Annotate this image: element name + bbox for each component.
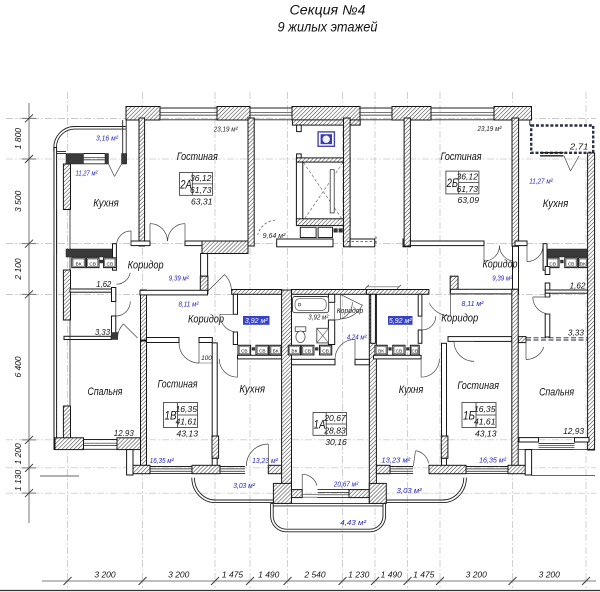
svg-text:11,27 м²: 11,27 м² <box>76 171 99 178</box>
svg-text:20,67: 20,67 <box>323 413 347 423</box>
svg-text:Спальня: Спальня <box>88 386 123 398</box>
svg-text:Спальня: Спальня <box>539 387 574 399</box>
svg-text:Коридор: Коридор <box>188 313 224 325</box>
svg-text:ВК: ВК <box>291 349 297 355</box>
svg-text:9,39 м²: 9,39 м² <box>492 275 513 282</box>
svg-text:2 100: 2 100 <box>13 258 23 281</box>
svg-text:1 200: 1 200 <box>13 443 23 465</box>
svg-text:Коридор: Коридор <box>483 259 518 271</box>
svg-text:4,43 м²: 4,43 м² <box>340 520 367 527</box>
svg-text:Гостиная: Гостиная <box>177 151 218 163</box>
svg-text:23,19 м²: 23,19 м² <box>213 127 239 134</box>
svg-text:3,92 м²: 3,92 м² <box>308 315 329 322</box>
svg-text:8,11 м²: 8,11 м² <box>462 301 485 308</box>
svg-text:9,39 м²: 9,39 м² <box>169 276 190 283</box>
svg-text:3 200: 3 200 <box>94 570 116 580</box>
svg-text:1 490: 1 490 <box>381 570 403 580</box>
svg-text:СВ: СВ <box>304 349 311 355</box>
svg-text:Коридор: Коридор <box>441 312 478 324</box>
svg-text:1 490: 1 490 <box>258 570 280 580</box>
svg-text:1 230: 1 230 <box>348 570 370 580</box>
svg-text:63,31: 63,31 <box>191 197 213 207</box>
svg-text:5,92 м²: 5,92 м² <box>389 318 412 325</box>
svg-text:4,24 м²: 4,24 м² <box>347 335 368 342</box>
svg-text:13,23 м²: 13,23 м² <box>252 458 278 465</box>
svg-text:63,09: 63,09 <box>457 195 479 205</box>
svg-text:Кухня: Кухня <box>543 198 569 210</box>
svg-text:3 500: 3 500 <box>13 190 23 212</box>
svg-text:41,61: 41,61 <box>474 417 496 427</box>
svg-text:3 200: 3 200 <box>466 570 488 580</box>
svg-text:43,13: 43,13 <box>475 429 497 439</box>
svg-text:3,33: 3,33 <box>568 327 584 337</box>
svg-text:СВ: СВ <box>396 349 403 355</box>
svg-text:Коридор: Коридор <box>128 260 164 272</box>
svg-text:28,83: 28,83 <box>323 425 346 435</box>
svg-text:3,92 м²: 3,92 м² <box>245 318 268 325</box>
svg-text:2 540: 2 540 <box>303 570 326 580</box>
svg-text:3,03 м²: 3,03 м² <box>233 483 255 490</box>
svg-text:23,19 м²: 23,19 м² <box>477 126 503 133</box>
svg-text:СВ: СВ <box>322 349 329 355</box>
svg-text:16,35: 16,35 <box>474 404 496 414</box>
svg-text:ВК: ВК <box>378 349 384 355</box>
svg-text:43,13: 43,13 <box>176 429 198 439</box>
svg-text:16,35 м²: 16,35 м² <box>479 457 507 464</box>
svg-text:41,61: 41,61 <box>175 417 197 427</box>
svg-text:30,16: 30,16 <box>325 437 347 447</box>
svg-text:36,12: 36,12 <box>456 172 478 182</box>
svg-text:Гостиная: Гостиная <box>441 151 482 163</box>
svg-text:1 130: 1 130 <box>13 470 23 492</box>
svg-text:СВ: СВ <box>89 261 96 267</box>
svg-text:ВК: ВК <box>580 261 586 267</box>
svg-text:СВ: СВ <box>259 349 266 355</box>
svg-text:СВ: СВ <box>241 349 248 355</box>
svg-text:Гостиная: Гостиная <box>158 379 198 391</box>
svg-text:1 475: 1 475 <box>222 570 244 580</box>
svg-text:100: 100 <box>201 355 212 362</box>
svg-text:БК: БК <box>273 349 279 355</box>
svg-text:3,03 м²: 3,03 м² <box>397 488 423 495</box>
svg-text:СВ: СВ <box>411 349 418 355</box>
svg-text:Кухня: Кухня <box>239 383 265 395</box>
svg-text:СВ: СВ <box>107 261 114 267</box>
svg-text:8,11 м²: 8,11 м² <box>179 301 200 308</box>
svg-text:9,64 м²: 9,64 м² <box>263 233 286 240</box>
svg-text:61,73: 61,73 <box>456 184 478 194</box>
svg-text:6 400: 6 400 <box>13 356 23 378</box>
svg-text:36,12: 36,12 <box>190 173 212 183</box>
svg-text:16,35: 16,35 <box>175 404 197 414</box>
svg-text:11,27 м²: 11,27 м² <box>529 179 553 186</box>
svg-text:1 475: 1 475 <box>413 570 435 580</box>
svg-text:61,73: 61,73 <box>190 185 212 195</box>
svg-text:Секция №4: Секция №4 <box>290 3 366 18</box>
svg-text:3,33: 3,33 <box>95 327 110 337</box>
svg-text:1 800: 1 800 <box>13 128 23 150</box>
svg-text:2,71: 2,71 <box>569 141 589 151</box>
svg-text:Кухня: Кухня <box>399 384 424 396</box>
svg-text:3,16 м²: 3,16 м² <box>96 136 119 143</box>
svg-text:1,62: 1,62 <box>570 281 586 291</box>
svg-text:3 200: 3 200 <box>168 570 190 580</box>
svg-text:1,62: 1,62 <box>96 279 111 289</box>
svg-text:ВК: ВК <box>76 261 82 267</box>
svg-text:13,23 м²: 13,23 м² <box>381 457 410 464</box>
svg-text:Гостиная: Гостиная <box>457 380 499 392</box>
svg-text:Кухня: Кухня <box>93 198 119 210</box>
svg-text:СВ: СВ <box>549 261 556 267</box>
svg-text:20,67 м²: 20,67 м² <box>333 482 359 489</box>
svg-text:3 200: 3 200 <box>539 570 561 580</box>
svg-text:9 жилых этажей: 9 жилых этажей <box>278 20 378 35</box>
svg-text:12.93: 12.93 <box>114 428 134 438</box>
svg-text:16,35 м²: 16,35 м² <box>150 458 175 465</box>
svg-text:12,93: 12,93 <box>563 426 584 436</box>
svg-text:СВ: СВ <box>568 261 575 267</box>
